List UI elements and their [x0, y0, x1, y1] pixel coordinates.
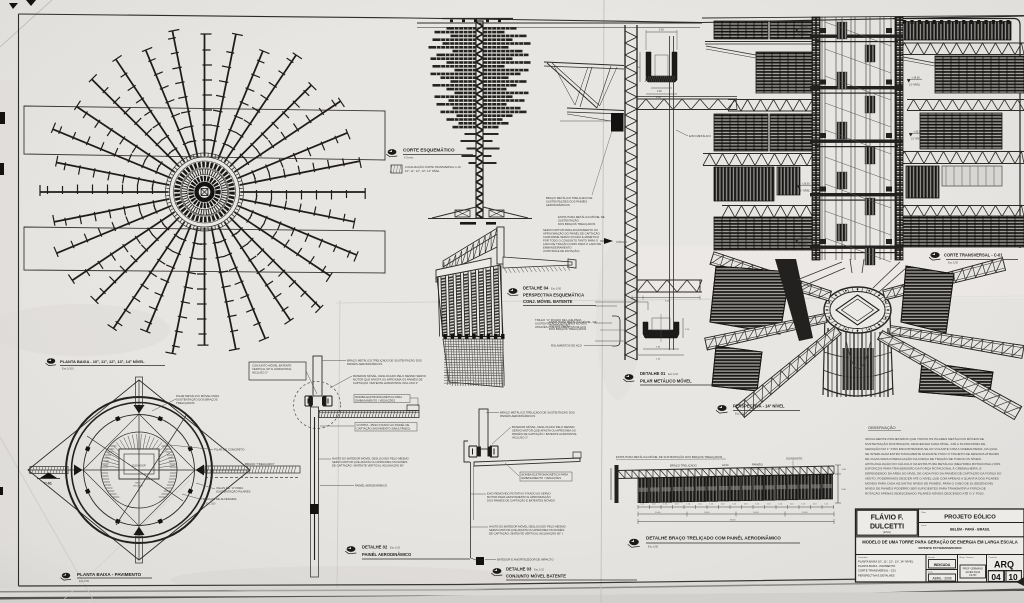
svg-text:Esc 1/50: Esc 1/50	[948, 261, 959, 265]
svg-text:GUINDASTE: GUINDASTE	[786, 457, 802, 461]
svg-text:1.10: 1.10	[675, 504, 679, 506]
svg-text:Obra: Obra	[921, 511, 927, 514]
svg-text:MEIO: MEIO	[135, 483, 141, 485]
svg-text:OBSERVAÇÃO: OBSERVAÇÃO	[868, 425, 896, 430]
svg-text:FLÁVIO F.: FLÁVIO F.	[871, 513, 904, 522]
svg-text:44.00: 44.00	[722, 463, 729, 467]
svg-text:Esc 1/100: Esc 1/100	[62, 366, 74, 370]
svg-text:DETALHE 02: DETALHE 02	[362, 545, 388, 550]
svg-text:INCLUSO 2°: INCLUSO 2°	[252, 371, 268, 375]
svg-text:DETALHE 03: DETALHE 03	[506, 567, 532, 572]
svg-text:ESFORÇOS PARA TRANSMISSÃO DA F: ESFORÇOS PARA TRANSMISSÃO DA FORÇA ROTAC…	[865, 466, 982, 471]
svg-text:1.10: 1.10	[778, 504, 782, 506]
svg-text:PILAR METÁLICO MÓVEL: PILAR METÁLICO MÓVEL	[640, 379, 692, 384]
svg-text:BATEDOR E AMORTECEDOR DE IMPAC: BATEDOR E AMORTECEDOR DE IMPACTO	[497, 558, 554, 562]
svg-text:PAINÉL AERODINÂMICO: PAINÉL AERODINÂMICO	[362, 552, 412, 557]
svg-text:Esc 1/50: Esc 1/50	[206, 503, 216, 506]
svg-text:Esc 1/50: Esc 1/50	[79, 579, 90, 583]
svg-text:INDICADA: INDICADA	[934, 563, 951, 567]
svg-text:2.00: 2.00	[657, 90, 662, 93]
svg-text:PERSPECTIVA E DETALHES: PERSPECTIVA E DETALHES	[858, 573, 895, 577]
svg-text:PAINÉL AERODINÂMICO: PAINÉL AERODINÂMICO	[355, 483, 388, 488]
svg-text:(CONTROLE DE ROTAÇÃO): (CONTROLE DE ROTAÇÃO)	[543, 248, 580, 253]
svg-text:BELÉM - PARÁ - BRASIL: BELÉM - PARÁ - BRASIL	[950, 527, 990, 532]
svg-text:DE CAPTAÇÃO ( BATENTE VERTICAL: DE CAPTAÇÃO ( BATENTE VERTICAL INCLINAÇÃ…	[489, 531, 563, 536]
svg-text:CORTE TRANSVERSAL - C01: CORTE TRANSVERSAL - C01	[858, 569, 896, 573]
svg-text:6 Torres: 6 Torres	[404, 155, 414, 159]
svg-text:10° NÍVEL: 10° NÍVEL	[797, 244, 809, 247]
svg-text:PLANTA BAIXA - 10°, 11°, 12°,: PLANTA BAIXA - 10°, 11°, 12°, 13°, 14° N…	[60, 359, 145, 364]
svg-text:1.10: 1.10	[744, 504, 748, 506]
svg-text:1.10: 1.10	[652, 504, 656, 506]
svg-text:ARQ: ARQ	[994, 560, 1014, 570]
svg-text:CORTE ESQUEMÁTICO: CORTE ESQUEMÁTICO	[403, 147, 455, 153]
svg-text:CAPTAÇÃO / BATENTE HORIZONTAL: CAPTAÇÃO / BATENTE HORIZONTAL INCLUSO 2°	[353, 380, 418, 385]
svg-text:10.00: 10.00	[753, 512, 759, 514]
svg-text:EMBASAMENTO / VEDAÇÕES: EMBASAMENTO / VEDAÇÕES	[356, 397, 396, 402]
svg-text:10.00: 10.00	[655, 512, 661, 514]
svg-text:NÍVEIS DE PAINÉIS PODERÃO SER: NÍVEIS DE PAINÉIS PODERÃO SER SUFICIENTE…	[865, 486, 986, 491]
svg-text:DOS BRAÇOS TRELIÇADOS: DOS BRAÇOS TRELIÇADOS	[558, 222, 595, 226]
svg-text:5.30: 5.30	[659, 29, 664, 32]
svg-text:CAPTAÇÃO (MOVIMENTO SIMULTÂNEO: CAPTAÇÃO (MOVIMENTO SIMULTÂNEO)	[357, 426, 411, 431]
svg-text:1.10: 1.10	[801, 504, 805, 506]
svg-text:CORTE TRANSVERSAL - C-01: CORTE TRANSVERSAL - C-01	[944, 253, 1003, 258]
svg-text:ENGODR: ENGODR	[133, 486, 143, 488]
svg-text:13° NÍVEL: 13° NÍVEL	[909, 84, 921, 87]
svg-text:APÓS AVALIAÇÃO DO CÁLCULO DA E: APÓS AVALIAÇÃO DO CÁLCULO DA ESTRUTURA M…	[865, 461, 1000, 466]
svg-text:DE CAPTAÇÃO / BATENTE VERTICAL: DE CAPTAÇÃO / BATENTE VERTICAL INCLINAÇÃ…	[332, 463, 404, 468]
svg-text:10.00: 10.00	[802, 512, 808, 514]
svg-text:ABRIL - 2009: ABRIL - 2009	[932, 576, 951, 580]
svg-text:DEPENDENDO DA ÁREA DO NÍVEL DE: DEPENDENDO DA ÁREA DO NÍVEL DE CADA PISO…	[865, 471, 1002, 476]
svg-text:1.10: 1.10	[663, 504, 667, 506]
svg-text:12° NÍVEL: 12° NÍVEL	[911, 138, 923, 141]
svg-text:ROTAÇÃO APENAS INDESCENADO PIL: ROTAÇÃO APENAS INDESCENADO PILARES NÓVEI…	[865, 490, 985, 495]
svg-text:(ENG): (ENG)	[883, 530, 891, 534]
svg-text:PERSPECTIVA - 14° NÍVEL: PERSPECTIVA - 14° NÍVEL	[733, 404, 785, 409]
svg-text:Escala: Escala	[928, 557, 935, 559]
svg-text:Esc 1/100: Esc 1/100	[735, 412, 747, 416]
svg-text:Prancha: Prancha	[989, 556, 998, 559]
svg-text:11° NÍVEL: 11° NÍVEL	[799, 190, 811, 193]
svg-text:AERODINÂMICOS: AERODINÂMICOS	[546, 202, 570, 207]
svg-text:EMBASAMENTO / VEDAÇÕES: EMBASAMENTO / VEDAÇÕES	[522, 475, 562, 480]
svg-text:BRAÇO “TRELIÇADO”: BRAÇO “TRELIÇADO”	[245, 462, 275, 466]
svg-text:DOS BRAÇOS TRELIÇADOS: DOS BRAÇOS TRELIÇADOS	[549, 327, 586, 331]
svg-text:Esc 1/10: Esc 1/10	[390, 546, 401, 550]
svg-text:PERSPECTIVA ESQUEMÁTICA: PERSPECTIVA ESQUEMÁTICA	[523, 293, 584, 298]
svg-text:PLANTA BAIXA - PAVIMENTO: PLANTA BAIXA - PAVIMENTO	[77, 572, 142, 577]
svg-text:PAINÉIS: PAINÉIS	[752, 462, 763, 467]
svg-text:FILHO: FILHO	[969, 574, 976, 577]
svg-text:PLANTA BAIXA 10°, 11°, 12°, 13: PLANTA BAIXA 10°, 11°, 12°, 13°, 14° NÍV…	[858, 560, 914, 564]
svg-text:Conteúdo: Conteúdo	[858, 556, 868, 559]
svg-text:PILAR DE CONCRETO: PILAR DE CONCRETO	[214, 448, 245, 452]
svg-text:1.10: 1.10	[709, 504, 713, 506]
svg-text:10°, 11°, 12°, 13°, 14° NÍVEL: 10°, 11°, 12°, 13°, 14° NÍVEL	[405, 169, 440, 173]
svg-text:ROLAMENTOS DE AÇO: ROLAMENTOS DE AÇO	[551, 344, 583, 348]
svg-text:CONJUNTO MÓVEL BATENTE: CONJUNTO MÓVEL BATENTE	[506, 574, 566, 579]
svg-text:1.10: 1.10	[790, 504, 794, 506]
svg-text:04: 04	[991, 572, 1001, 582]
svg-text:VENTO, PODERÍAMOS DESCER ATÉ O: VENTO, PODERÍAMOS DESCER ATÉ O NÍVEL QUE…	[865, 476, 999, 481]
svg-text:PAINÉIS AERODINÂMICOS: PAINÉIS AERODINÂMICOS	[347, 361, 382, 366]
svg-text:Esc 1/50: Esc 1/50	[648, 545, 659, 549]
svg-text:1.10: 1.10	[698, 504, 702, 506]
svg-text:PAINÉIS AERODINÂMICOS: PAINÉIS AERODINÂMICOS	[500, 413, 535, 418]
svg-text:PROJETO EÓLICO: PROJETO EÓLICO	[944, 513, 996, 521]
svg-text:1.10: 1.10	[824, 504, 828, 506]
svg-text:GERAÇÃO DO 1° PISO ENCONTRANDO: GERAÇÃO DO 1° PISO ENCONTRANDO-SE AO VOL…	[865, 446, 998, 451]
svg-text:MODELO DE UMA TORRE PARA GERAÇ: MODELO DE UMA TORRE PARA GERAÇÃO DE ENER…	[862, 540, 1018, 545]
svg-text:14° NÍVEL: 14° NÍVEL	[797, 33, 809, 36]
svg-text:Esc 1/10: Esc 1/10	[534, 568, 545, 572]
svg-text:EIXO METÁLICO: EIXO METÁLICO	[689, 134, 712, 138]
svg-text:INICIALMENTE PROJETAMOS QUE TO: INICIALMENTE PROJETAMOS QUE TODOS OS PIL…	[865, 436, 984, 441]
svg-text:INCLUSO 2°: INCLUSO 2°	[512, 436, 528, 440]
svg-text:TRELIÇADOS: TRELIÇADOS	[176, 401, 195, 405]
svg-text:MÓVEIS PARA CADA ADJUNTAS NÍVE: MÓVEIS PARA CADA ADJUNTAS NÍVEIS DE PAIN…	[865, 481, 993, 486]
svg-text:DOS PAINÉIS DE CAPTAÇÃO E BATE: DOS PAINÉIS DE CAPTAÇÃO E BATENTES MÓVEI…	[487, 498, 555, 503]
svg-text:SUSTENTAÇÃO PILARES: SUSTENTAÇÃO PILARES	[216, 488, 251, 493]
svg-text:1.10: 1.10	[640, 504, 644, 506]
svg-text:Resp. Técnico: Resp. Técnico	[960, 557, 975, 559]
svg-text:10: 10	[1008, 572, 1018, 582]
svg-text:Esc 1/50: Esc 1/50	[551, 287, 562, 291]
svg-text:58.00: 58.00	[730, 520, 736, 522]
svg-text:10.00: 10.00	[704, 512, 710, 514]
svg-text:SUSTENTAÇÃO DOS BRAÇOS, DESCEM: SUSTENTAÇÃO DOS BRAÇOS, DESCEM EM CADA N…	[865, 441, 985, 446]
svg-text:1.10: 1.10	[686, 504, 690, 506]
svg-text:DETALHE 01: DETALHE 01	[640, 371, 666, 376]
svg-text:C-01: C-01	[44, 482, 52, 486]
svg-text:1.10: 1.10	[755, 504, 759, 506]
svg-text:1.10: 1.10	[813, 504, 817, 506]
svg-text:1.10: 1.10	[767, 504, 771, 506]
svg-text:DETALHE BRAÇO TRELIÇADO COM PA: DETALHE BRAÇO TRELIÇADO COM PAINÉL AEROD…	[646, 534, 781, 541]
svg-text:O BRAÇO: O BRAÇO	[616, 241, 627, 244]
svg-text:DE VIGAS PARA INTERLIGAÇÃO DA: DE VIGAS PARA INTERLIGAÇÃO DA FORÇA DE T…	[865, 456, 982, 461]
svg-text:CONJ. MÓVEL BATENTE: CONJ. MÓVEL BATENTE	[523, 299, 573, 304]
svg-text:PATENTE PCT/BR2008/000263: PATENTE PCT/BR2008/000263	[918, 546, 961, 550]
svg-text:SE INTERLIGAM ESTRUTURALMENTE: SE INTERLIGAM ESTRUTURALMENTE DURANTE TO…	[865, 451, 999, 456]
svg-text:DETALHE 04: DETALHE 04	[523, 286, 549, 291]
svg-text:PLANTA BAIXA - PAVIMENTO: PLANTA BAIXA - PAVIMENTO	[858, 564, 895, 568]
svg-text:Local: Local	[921, 525, 927, 527]
svg-text:Data: Data	[928, 571, 933, 574]
svg-text:1.10: 1.10	[732, 504, 736, 506]
svg-text:Esc 1/10: Esc 1/10	[668, 372, 679, 376]
svg-text:BRAÇO TRELIÇADO: BRAÇO TRELIÇADO	[670, 464, 698, 468]
svg-text:1.10: 1.10	[721, 504, 725, 506]
svg-text:ESTRUTURA METÁLICA MÓVEL DE SU: ESTRUTURA METÁLICA MÓVEL DE SUSTENTAÇÃO …	[616, 454, 722, 459]
svg-text:TRELIÇAS DE ALVENARIA: TRELIÇAS DE ALVENARIA	[201, 497, 237, 501]
